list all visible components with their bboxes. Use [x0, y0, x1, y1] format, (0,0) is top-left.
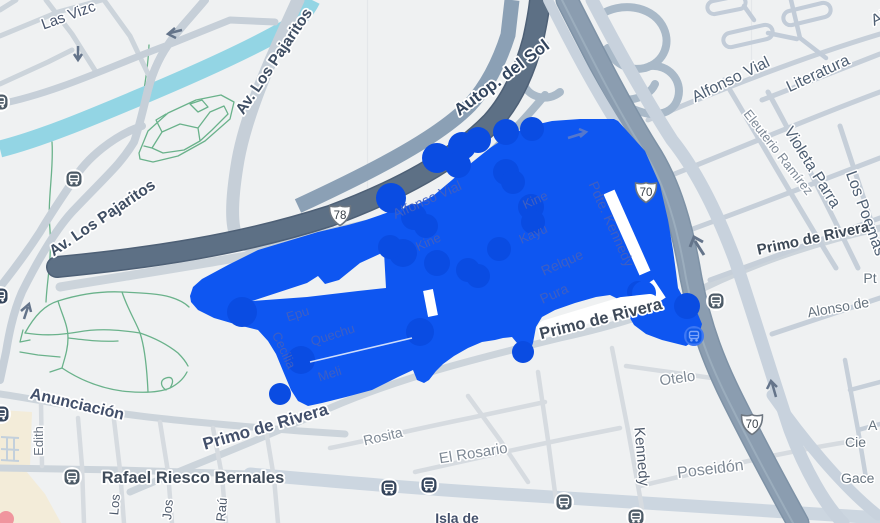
svg-text:Los: Los: [106, 493, 123, 516]
svg-text:A: A: [868, 417, 878, 433]
svg-text:Jos: Jos: [159, 498, 176, 520]
svg-text:78: 78: [334, 210, 347, 222]
svg-text:Pt: Pt: [863, 270, 876, 286]
svg-text:Raú: Raú: [213, 497, 230, 522]
svg-text:Gace: Gace: [841, 470, 875, 486]
svg-text:Isla de: Isla de: [435, 510, 479, 523]
svg-text:Rafael Riesco Bernales: Rafael Riesco Bernales: [102, 469, 285, 487]
svg-text:Edith: Edith: [31, 426, 46, 456]
svg-text:70: 70: [640, 187, 653, 199]
svg-text:Cie: Cie: [845, 434, 866, 450]
svg-text:70: 70: [746, 419, 759, 431]
